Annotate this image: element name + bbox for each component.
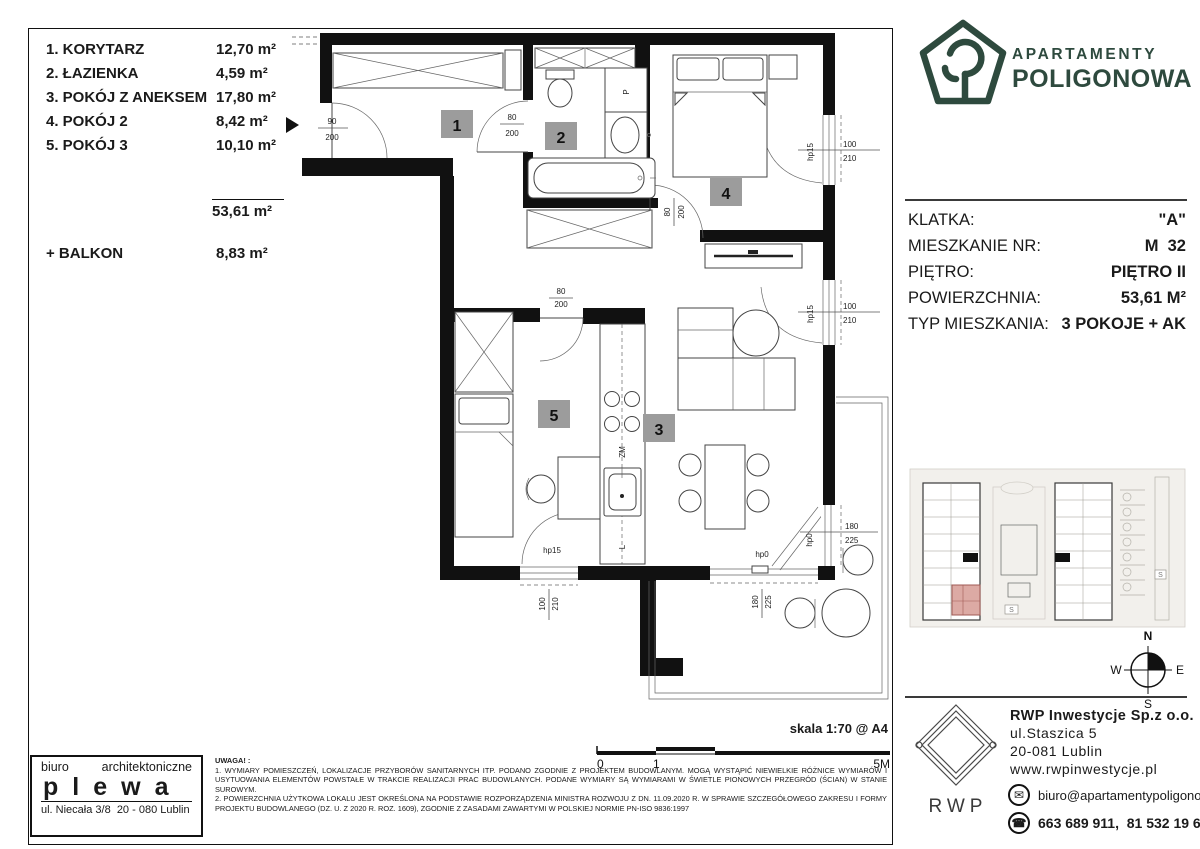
- coffee-table-icon: [733, 310, 779, 356]
- developer-phones: 663 689 911, 81 532 19 66: [1038, 815, 1200, 831]
- rwp-logo-text: RWP: [916, 796, 1000, 818]
- phone-row: ☎ 663 689 911, 81 532 19 66: [1008, 812, 1200, 834]
- balcony-chair-icon: [785, 598, 815, 628]
- svg-text:180: 180: [845, 522, 859, 531]
- developer-email: biuro@apartamentypoligonowa.pl: [1038, 788, 1200, 803]
- window-room4: 100 210 hp15: [761, 115, 880, 185]
- balcony-row: + BALKON 8,83 m²: [46, 245, 282, 262]
- svg-text:W: W: [1110, 663, 1122, 677]
- developer-name: RWP Inwestycje Sp.z o.o.: [1010, 708, 1195, 724]
- svg-text:100: 100: [843, 140, 857, 149]
- developer-contact: RWP Inwestycje Sp.z o.o. ul.Staszica 5 2…: [1010, 708, 1195, 778]
- svg-text:N: N: [1144, 629, 1153, 643]
- site-plan-minimap: S S: [905, 455, 1190, 640]
- envelope-icon: ✉: [1008, 784, 1030, 806]
- svg-text:200: 200: [325, 133, 339, 142]
- svg-text:S: S: [1158, 572, 1163, 579]
- svg-text:100: 100: [843, 302, 857, 311]
- chair-icon: [747, 490, 769, 512]
- hall-wardrobe: [527, 210, 652, 248]
- room5-door: 80 200: [540, 287, 583, 361]
- svg-text:hp0: hp0: [805, 533, 814, 547]
- info-row: TYP MIESZKANIA:3 POKOJE + AK: [908, 311, 1186, 337]
- bathroom-door: 80 200: [477, 101, 528, 152]
- room-list-row: 3. POKÓJ Z ANEKSEM17,80 m²: [46, 86, 282, 110]
- svg-text:4: 4: [722, 186, 731, 203]
- scale-label: skala 1:70 @ A4: [600, 721, 888, 736]
- minimap-building-left: [923, 483, 980, 620]
- room-list-row: 5. POKÓJ 310,10 m²: [46, 134, 282, 158]
- entry-door: 90 200: [286, 103, 387, 158]
- brand-line2: POLIGONOWA: [1012, 65, 1192, 94]
- notes-title: UWAGA! :: [215, 756, 250, 765]
- svg-text:3: 3: [655, 422, 664, 439]
- desk-chair-icon: [527, 475, 555, 503]
- kitchen-annex: ZM L: [600, 324, 645, 564]
- entry-arrow-icon: [286, 117, 299, 133]
- architect-word2: architektoniczne: [102, 760, 192, 774]
- svg-text:100: 100: [538, 597, 547, 611]
- desk-icon: [558, 457, 600, 519]
- svg-text:200: 200: [554, 300, 568, 309]
- svg-text:hp0: hp0: [755, 550, 769, 559]
- floor-plan-sheet: 1. KORYTARZ12,70 m² 2. ŁAZIENKA4,59 m² 3…: [0, 0, 1200, 849]
- svg-text:ZM: ZM: [618, 446, 627, 458]
- phone-icon: ☎: [1008, 812, 1030, 834]
- balcony-door-right: hp0 180 225: [800, 505, 878, 566]
- architect-name: plewa: [43, 774, 192, 800]
- apartment-info: KLATKA:"A" MIESZKANIE NR:M 32 PIĘTRO:PIĘ…: [908, 207, 1186, 337]
- developer-address1: ul.Staszica 5: [1010, 724, 1195, 742]
- svg-text:210: 210: [843, 154, 857, 163]
- svg-text:80: 80: [663, 207, 672, 216]
- toilet-icon: [546, 70, 574, 79]
- kitchen-sink-icon: [604, 468, 641, 516]
- info-row: KLATKA:"A": [908, 207, 1186, 233]
- svg-text:180: 180: [751, 595, 760, 609]
- architect-box: biuro architektoniczne plewa ul. Niecała…: [30, 755, 203, 837]
- chair-icon: [747, 454, 769, 476]
- room5-furniture: [455, 312, 600, 537]
- chair-icon: [679, 454, 701, 476]
- floor-plan: 90 200 80 200 80 200 80 200: [280, 25, 895, 715]
- balcony-outline: [649, 397, 888, 699]
- svg-text:P: P: [622, 89, 631, 94]
- svg-text:200: 200: [677, 205, 686, 219]
- room-list-row: 2. ŁAZIENKA4,59 m²: [46, 62, 282, 86]
- brand-line1: APARTAMENTY: [1012, 46, 1192, 64]
- minimap-building-right: [1055, 483, 1112, 620]
- total-divider: [212, 199, 284, 200]
- svg-text:80: 80: [557, 287, 566, 296]
- balcony-table-icon: [822, 589, 870, 637]
- svg-text:225: 225: [764, 595, 773, 609]
- divider: [905, 199, 1187, 201]
- window-room5: hp15 100 210: [520, 512, 578, 620]
- developer-address2: 20-081 Lublin: [1010, 742, 1195, 760]
- room3-furniture: [678, 308, 795, 529]
- notes-line1: 1. WYMIARY POMIESZCZEŃ, LOKALIZACJE PRZY…: [215, 766, 887, 794]
- balcony-chair-icon: [843, 545, 873, 575]
- info-row: PIĘTRO:PIĘTRO II: [908, 259, 1186, 285]
- notes-line2: 2. POWIERZCHNIA UŻYTKOWA LOKALU JEST OKR…: [215, 794, 887, 813]
- chair-icon: [679, 490, 701, 512]
- architect-address: ul. Niecała 3/8 20 - 080 Lublin: [41, 804, 192, 816]
- corridor-wardrobe: [333, 50, 521, 90]
- email-row: ✉ biuro@apartamentypoligonowa.pl: [1008, 784, 1200, 806]
- brand-wordmark: APARTAMENTY POLIGONOWA: [1012, 46, 1192, 94]
- info-row: MIESZKANIE NR:M 32: [908, 233, 1186, 259]
- nightstand-icon: [769, 55, 797, 79]
- svg-text:2: 2: [557, 130, 566, 147]
- svg-text:hp15: hp15: [806, 305, 815, 323]
- highlighted-unit: [952, 585, 980, 615]
- svg-text:E: E: [1176, 663, 1184, 677]
- total-area: 53,61 m²: [212, 203, 272, 220]
- svg-text:5: 5: [550, 408, 559, 425]
- svg-text:90: 90: [328, 117, 337, 126]
- svg-text:hp15: hp15: [543, 546, 561, 555]
- notes: UWAGA! : 1. WYMIARY POMIESZCZEŃ, LOKALIZ…: [215, 756, 887, 814]
- room4-door: 80 200: [650, 185, 703, 238]
- room-list: 1. KORYTARZ12,70 m² 2. ŁAZIENKA4,59 m² 3…: [46, 38, 282, 158]
- svg-text:225: 225: [845, 536, 859, 545]
- brand-pentagon-icon: [915, 16, 1011, 112]
- dining-table-icon: [705, 445, 745, 529]
- svg-text:L: L: [618, 544, 627, 549]
- room-list-row: 1. KORYTARZ12,70 m²: [46, 38, 282, 62]
- svg-text:80: 80: [508, 113, 517, 122]
- svg-text:1: 1: [453, 118, 462, 135]
- svg-text:210: 210: [843, 316, 857, 325]
- developer-website: www.rwpinwestycje.pl: [1010, 760, 1195, 778]
- architect-word1: biuro: [41, 760, 69, 774]
- svg-text:hp15: hp15: [806, 143, 815, 161]
- info-row: POWIERZCHNIA:53,61 M²: [908, 285, 1186, 311]
- svg-text:200: 200: [505, 129, 519, 138]
- svg-text:210: 210: [551, 597, 560, 611]
- rwp-logo-icon: [908, 698, 1004, 798]
- room-list-row: 4. POKÓJ 28,42 m²: [46, 110, 282, 134]
- svg-text:S: S: [1009, 607, 1014, 614]
